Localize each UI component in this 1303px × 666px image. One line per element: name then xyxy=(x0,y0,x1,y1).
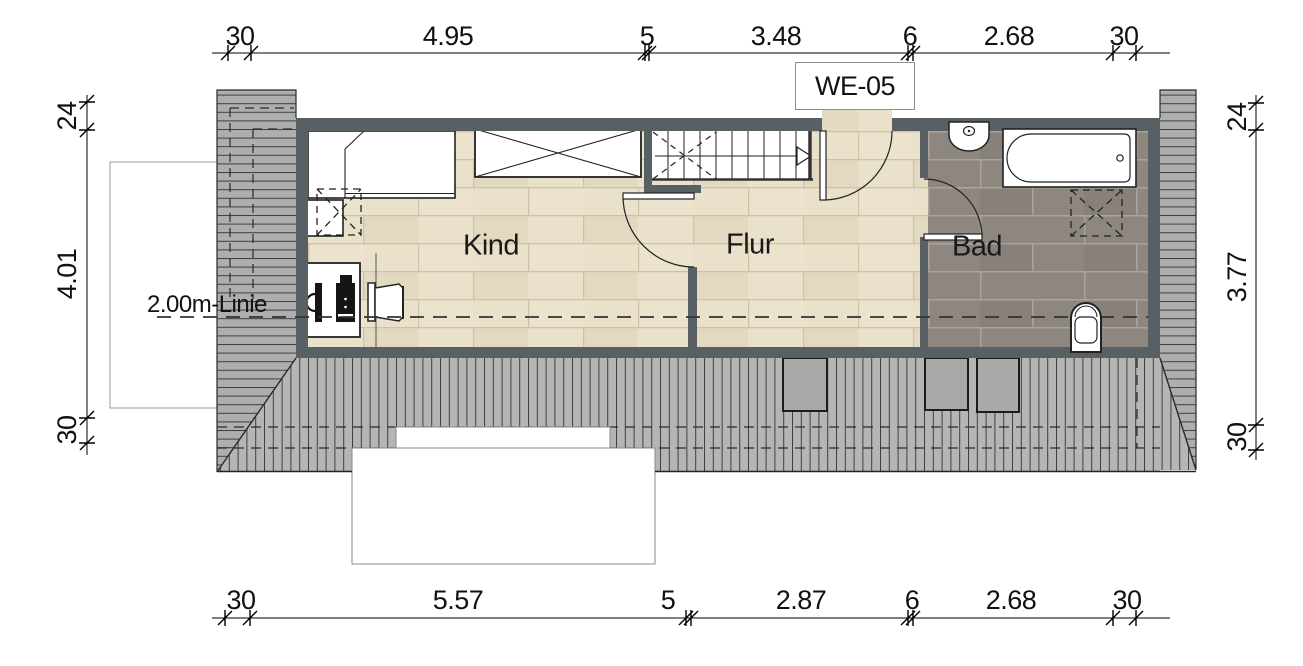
roof-window-2 xyxy=(925,358,968,410)
chair-backrest xyxy=(368,283,375,321)
pc-tower-top xyxy=(340,275,352,283)
dim-top-4: 6 xyxy=(903,22,918,50)
dim-left-2: 30 xyxy=(53,415,81,444)
pc-led-2 xyxy=(344,306,347,309)
dim-top-2: 5 xyxy=(640,22,655,50)
chair-seat xyxy=(375,284,403,321)
dim-right-2: 30 xyxy=(1223,422,1251,451)
dim-top-0: 30 xyxy=(225,22,254,50)
wall-stair-stub xyxy=(644,185,701,193)
dim-bottom-3: 2.87 xyxy=(776,586,827,614)
toilet-bowl xyxy=(1075,317,1097,343)
wall-flur-bad-upper xyxy=(920,131,928,178)
wall-bottom xyxy=(296,347,1160,358)
wall-stair-left xyxy=(644,131,652,193)
dim-bottom-6: 30 xyxy=(1112,586,1141,614)
floor-plan-drawing xyxy=(0,0,1303,666)
dim-bottom-5: 2.68 xyxy=(986,586,1037,614)
dormer-notch xyxy=(396,427,610,448)
dim-top-3: 3.48 xyxy=(751,22,802,50)
dim-top-5: 2.68 xyxy=(984,22,1035,50)
bathtub-drain xyxy=(1117,155,1123,161)
dim-bottom-2: 5 xyxy=(661,586,676,614)
unit-label-box: WE-05 xyxy=(795,62,915,110)
wall-top-left xyxy=(296,118,822,131)
bathtub xyxy=(1003,129,1136,187)
entry-threshold xyxy=(822,108,892,131)
wall-kind-flur xyxy=(688,267,697,347)
roof-window-3 xyxy=(977,358,1019,412)
pc-led-1 xyxy=(344,298,347,301)
wall-flur-bad-lower xyxy=(920,237,928,347)
wall-left xyxy=(296,131,308,358)
dim-left-1: 4.01 xyxy=(53,249,81,300)
nightstand xyxy=(305,200,343,236)
dim-right-1: 3.77 xyxy=(1223,252,1251,303)
kind-door-leaf xyxy=(623,193,694,199)
floor-plan-canvas: 30 4.95 5 3.48 6 2.68 30 30 5.57 5 2.87 … xyxy=(0,0,1303,666)
entry-door-leaf xyxy=(820,131,826,200)
staircase xyxy=(644,131,813,180)
dim-top-6: 30 xyxy=(1109,22,1138,50)
room-label-flur: Flur xyxy=(726,229,774,262)
bed xyxy=(308,131,455,198)
bad-door-threshold xyxy=(920,178,928,237)
left-dormer-outline xyxy=(110,162,220,408)
bottom-dormer-outline xyxy=(352,448,655,564)
two-meter-line-label: 2.00m-Linie xyxy=(147,291,267,319)
roof-window-1 xyxy=(783,358,827,411)
dim-bottom-4: 6 xyxy=(905,586,920,614)
unit-label: WE-05 xyxy=(815,71,895,102)
wall-right xyxy=(1148,131,1160,358)
dim-left-0: 24 xyxy=(53,101,81,130)
sink-drain xyxy=(968,130,970,132)
dim-bottom-1: 5.57 xyxy=(433,586,484,614)
room-label-kind: Kind xyxy=(463,230,519,263)
dim-bottom-0: 30 xyxy=(226,586,255,614)
right-gable-wall xyxy=(1160,90,1196,358)
room-label-bad: Bad xyxy=(952,231,1002,264)
dim-right-0: 24 xyxy=(1223,102,1251,131)
dim-top-1: 4.95 xyxy=(423,22,474,50)
